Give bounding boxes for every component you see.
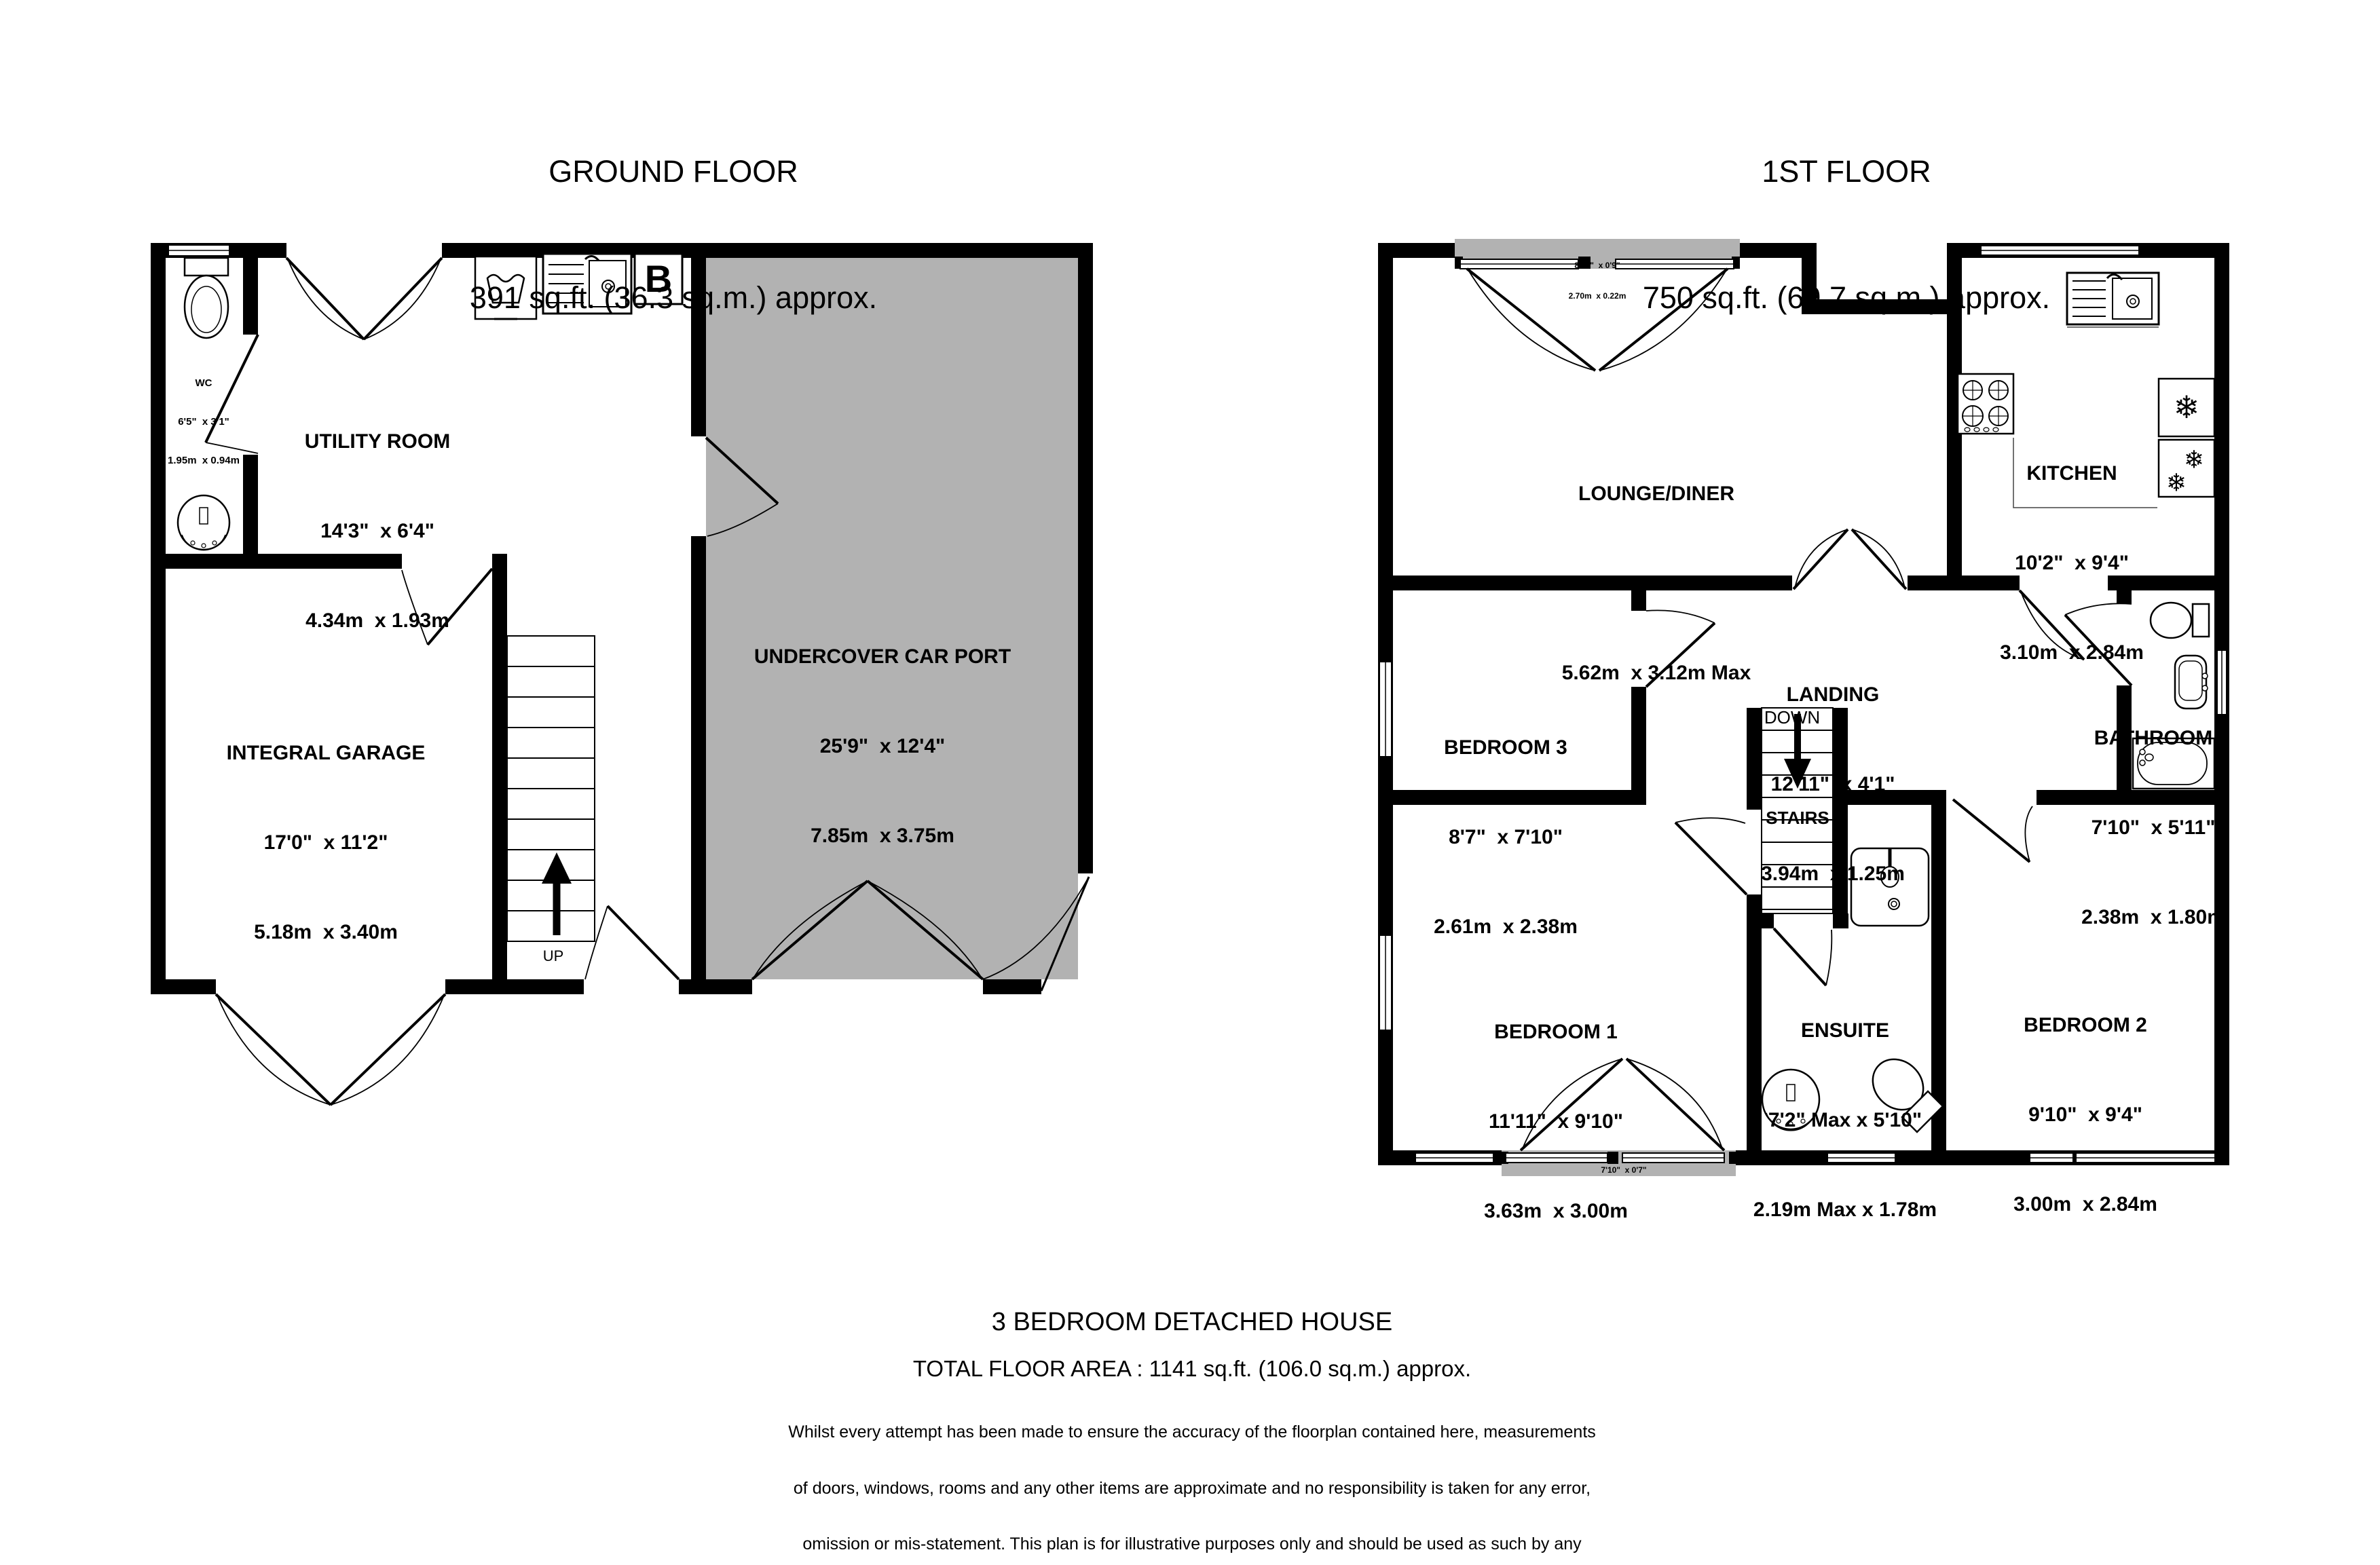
- room-label-bedroom3: BEDROOM 3 8'7" x 7'10" 2.61m x 2.38m: [1434, 673, 1578, 1002]
- room-dims-imperial: 12'11" x 4'1": [1761, 770, 1905, 799]
- first-floor-title-name: 1ST FLOOR: [1643, 151, 2050, 193]
- room-dims-imperial: 10'2" x 9'4": [2000, 548, 2144, 578]
- room-label-wc: WC 6'5" x 3'1" 1.95m x 0.94m: [168, 351, 240, 493]
- stairs-label: STAIRS: [1766, 808, 1829, 828]
- bathroom-toilet: [2151, 603, 2209, 638]
- total-floor-area: TOTAL FLOOR AREA : 1141 sq.ft. (106.0 sq…: [913, 1356, 1471, 1382]
- property-type-heading: 3 BEDROOM DETACHED HOUSE: [992, 1307, 1392, 1337]
- room-name: KITCHEN: [2000, 459, 2144, 489]
- bay-dims-imperial: 8'10" x 0'9": [1569, 261, 1626, 271]
- room-dims-imperial: 25'9" x 12'4": [754, 732, 1011, 761]
- room-dims-metric: 3.63m x 3.00m: [1484, 1196, 1628, 1226]
- room-dims-imperial: 6'5" x 3'1": [168, 415, 240, 428]
- disclaimer-text: Whilst every attempt has been made to en…: [783, 1386, 1600, 1565]
- floorplan-page: GROUND FLOOR 391 sq.ft. (36.3 sq.m.) app…: [0, 0, 2380, 1565]
- room-name: BATHROOM: [2081, 723, 2225, 753]
- room-dims-imperial: 9'10" x 9'4": [2013, 1100, 2157, 1130]
- first-floor-title-area: 750 sq.ft. (69.7 sq.m.) approx.: [1643, 277, 2050, 319]
- room-dims-metric: 4.34m x 1.93m: [305, 606, 450, 636]
- stairs-down-label: DOWN: [1764, 707, 1820, 728]
- room-dims-metric: 2.38m x 1.80m: [2081, 903, 2225, 932]
- room-name: INTEGRAL GARAGE: [227, 738, 426, 768]
- disclaimer-line: omission or mis-statement. This plan is …: [783, 1535, 1600, 1554]
- freezer-snowflake-icon-top: ❄: [2184, 447, 2204, 474]
- disclaimer-line: of doors, windows, rooms and any other i…: [783, 1479, 1600, 1498]
- room-label-lounge: LOUNGE/DINER 18'5" x 10'3" Max 5.62m x 3…: [1562, 419, 1751, 748]
- first-floor-title: 1ST FLOOR 750 sq.ft. (69.7 sq.m.) approx…: [1643, 67, 2050, 403]
- room-label-carport: UNDERCOVER CAR PORT 25'9" x 12'4" 7.85m …: [754, 582, 1011, 911]
- room-dims-metric: 5.62m x 3.12m Max: [1562, 658, 1751, 688]
- room-label-ensuite: ENSUITE 7'2" Max x 5'10" 2.19m Max x 1.7…: [1753, 956, 1937, 1285]
- room-label-garage: INTEGRAL GARAGE 17'0" x 11'2" 5.18m x 3.…: [227, 679, 426, 1007]
- wc-basin: [178, 495, 229, 550]
- ground-stairs: [507, 636, 595, 941]
- room-dims-imperial: 8'7" x 7'10": [1434, 823, 1578, 852]
- room-dims-metric: 5.18m x 3.40m: [227, 918, 426, 947]
- room-dims-imperial: 18'5" x 10'3" Max: [1562, 569, 1751, 599]
- room-dims-metric: 1.95m x 0.94m: [168, 454, 240, 467]
- stairs-up-label: UP: [543, 946, 564, 966]
- room-name: WC: [168, 377, 240, 390]
- room-dims-imperial: 7'2" Max x 5'10": [1753, 1106, 1937, 1135]
- room-name: UTILITY ROOM: [305, 427, 450, 457]
- room-dims-imperial: 14'3" x 6'4": [305, 516, 450, 546]
- room-name: UNDERCOVER CAR PORT: [754, 642, 1011, 672]
- room-dims-metric: 2.19m Max x 1.78m: [1753, 1195, 1937, 1225]
- disclaimer-line: Whilst every attempt has been made to en…: [783, 1423, 1600, 1442]
- room-dims-imperial: 17'0" x 11'2": [227, 828, 426, 858]
- room-label-landing: LANDING 12'11" x 4'1" 3.94m x 1.25m: [1761, 620, 1905, 949]
- room-label-bathroom: BATHROOM 7'10" x 5'11" 2.38m x 1.80m: [2081, 664, 2225, 992]
- bottom-bay-window-dims: 7'10" x 0'7": [1601, 1165, 1646, 1175]
- room-label-utility: UTILITY ROOM 14'3" x 6'4" 4.34m x 1.93m: [305, 367, 450, 696]
- room-name: LOUNGE/DINER: [1562, 479, 1751, 509]
- room-label-bedroom1: BEDROOM 1 11'11" x 9'10" 3.63m x 3.00m: [1484, 958, 1628, 1286]
- bay-dims-metric: 2.70m x 0.22m: [1569, 291, 1626, 301]
- room-dims-metric: 3.94m x 1.25m: [1761, 859, 1905, 889]
- room-dims-metric: 3.00m x 2.84m: [2013, 1190, 2157, 1220]
- room-dims-imperial: 11'11" x 9'10": [1484, 1107, 1628, 1137]
- fridge-snowflake-icon: ❄: [2174, 389, 2200, 426]
- room-name: BEDROOM 3: [1434, 733, 1578, 763]
- wc-window: [168, 245, 229, 256]
- room-name: BEDROOM 1: [1484, 1017, 1628, 1047]
- top-bay-window-dims: 8'10" x 0'9" 2.70m x 0.22m: [1569, 240, 1626, 322]
- ground-floor-title: GROUND FLOOR 391 sq.ft. (36.3 sq.m.) app…: [470, 67, 877, 403]
- ground-floor-title-name: GROUND FLOOR: [470, 151, 877, 193]
- room-name: ENSUITE: [1753, 1016, 1937, 1046]
- room-dims-metric: 7.85m x 3.75m: [754, 821, 1011, 851]
- room-label-bedroom2: BEDROOM 2 9'10" x 9'4" 3.00m x 2.84m: [2013, 951, 2157, 1279]
- freezer-snowflake-icon-bottom: ❄: [2166, 470, 2187, 497]
- room-dims-imperial: 7'10" x 5'11": [2081, 813, 2225, 843]
- room-name: BEDROOM 2: [2013, 1011, 2157, 1040]
- room-dims-metric: 2.61m x 2.38m: [1434, 912, 1578, 942]
- boiler-label: B: [635, 254, 682, 304]
- room-name: LANDING: [1761, 680, 1905, 710]
- wc-toilet: [185, 258, 228, 338]
